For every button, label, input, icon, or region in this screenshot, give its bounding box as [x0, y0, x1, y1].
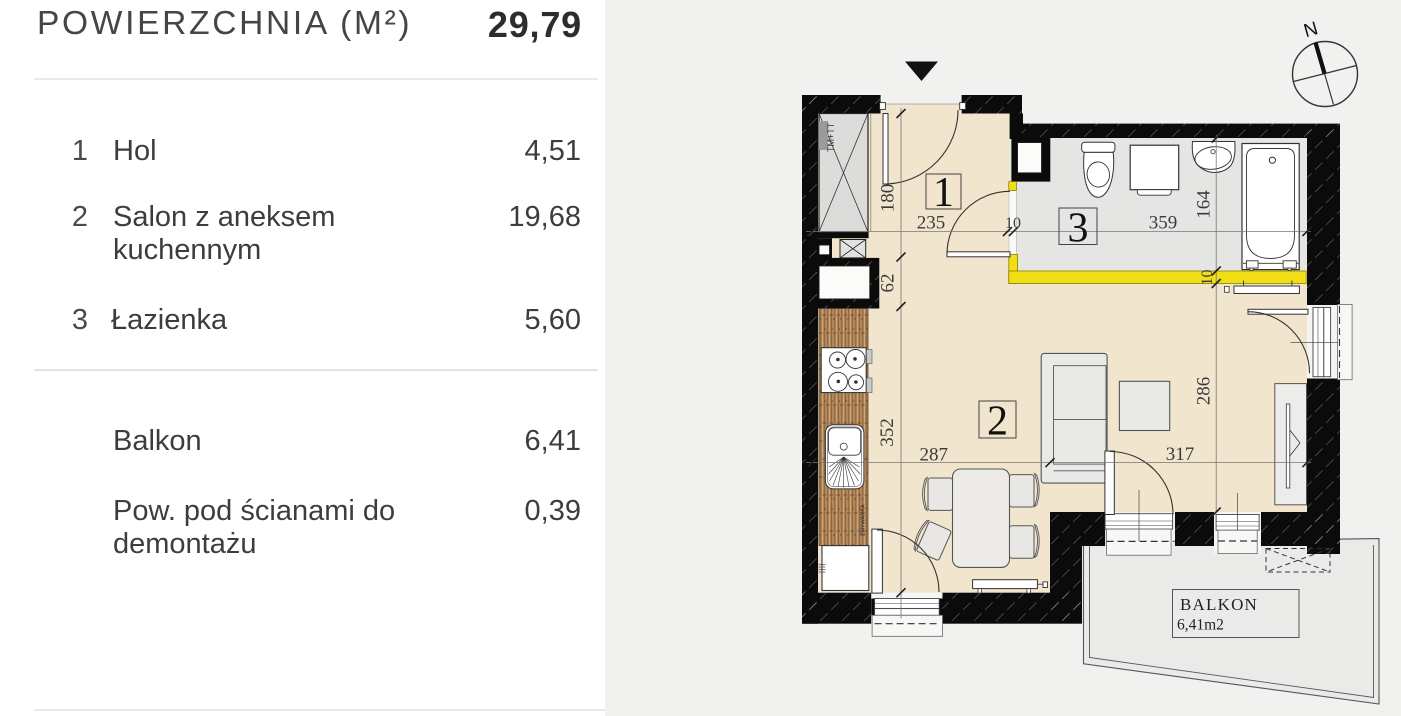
svg-text:N: N [1301, 18, 1320, 42]
svg-text:6,41m2: 6,41m2 [1177, 617, 1224, 634]
svg-text:ZMYWARKA: ZMYWARKA [861, 504, 867, 536]
svg-text:287: 287 [920, 445, 949, 466]
svg-text:164: 164 [1194, 190, 1215, 219]
svg-text:359: 359 [1149, 212, 1178, 233]
svg-text:352: 352 [877, 418, 898, 447]
svg-text:TM+TT: TM+TT [826, 122, 836, 152]
svg-text:10: 10 [1005, 215, 1021, 232]
svg-text:10: 10 [1199, 270, 1216, 286]
svg-text:BALKON: BALKON [1180, 595, 1258, 614]
svg-text:180: 180 [878, 184, 899, 213]
svg-text:286: 286 [1194, 377, 1215, 406]
svg-text:317: 317 [1166, 444, 1195, 465]
svg-text:62: 62 [878, 274, 899, 293]
svg-text:2: 2 [987, 399, 1008, 445]
svg-text:3: 3 [1068, 206, 1089, 252]
svg-text:1: 1 [933, 170, 954, 216]
